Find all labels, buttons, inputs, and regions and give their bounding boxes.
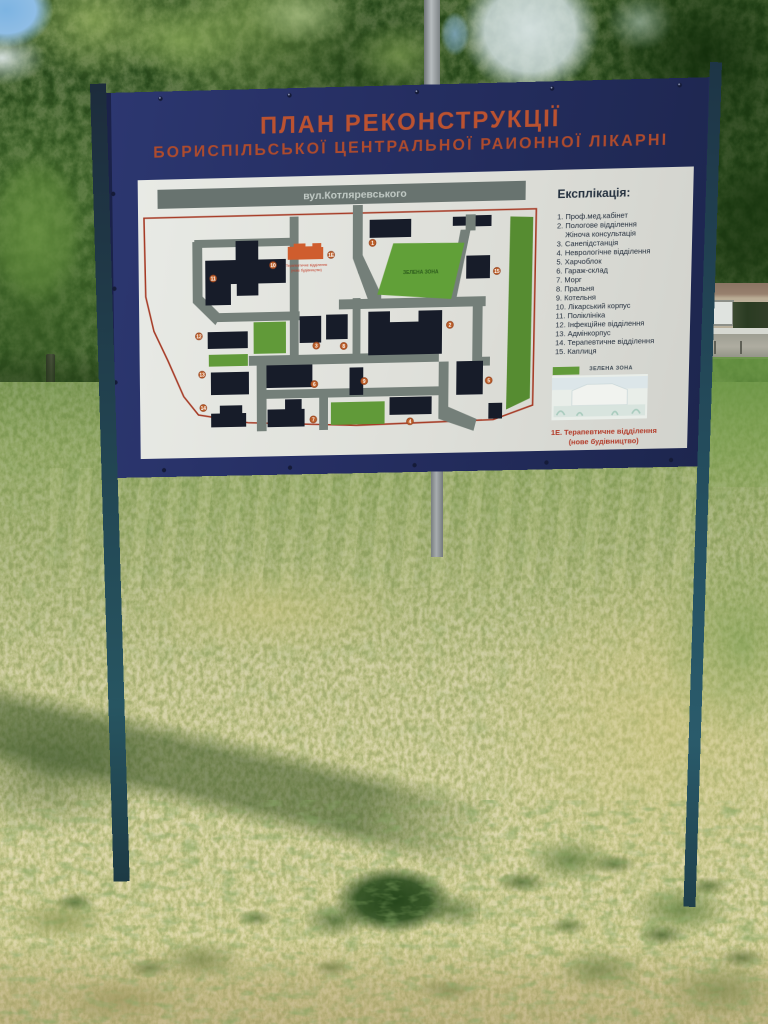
- svg-text:10: 10: [270, 263, 276, 269]
- svg-text:14: 14: [201, 406, 207, 412]
- svg-text:1Е: 1Е: [328, 253, 335, 259]
- svg-text:5: 5: [487, 378, 490, 384]
- svg-text:9: 9: [363, 379, 366, 385]
- svg-text:12: 12: [196, 334, 202, 340]
- svg-text:6: 6: [313, 382, 316, 388]
- svg-text:ЗЕЛЕНА ЗОНА: ЗЕЛЕНА ЗОНА: [403, 269, 439, 276]
- svg-text:8: 8: [342, 344, 345, 350]
- svg-text:3: 3: [315, 344, 318, 350]
- svg-text:(нове будівництво): (нове будівництво): [291, 268, 322, 273]
- svg-text:вул.Котляревського: вул.Котляревського: [303, 188, 407, 203]
- svg-text:15: 15: [494, 269, 500, 275]
- svg-text:2: 2: [449, 323, 452, 329]
- svg-text:4: 4: [409, 419, 412, 425]
- svg-text:7: 7: [312, 417, 315, 423]
- svg-text:11: 11: [211, 276, 216, 282]
- svg-text:1: 1: [371, 241, 374, 247]
- svg-text:13: 13: [199, 373, 205, 379]
